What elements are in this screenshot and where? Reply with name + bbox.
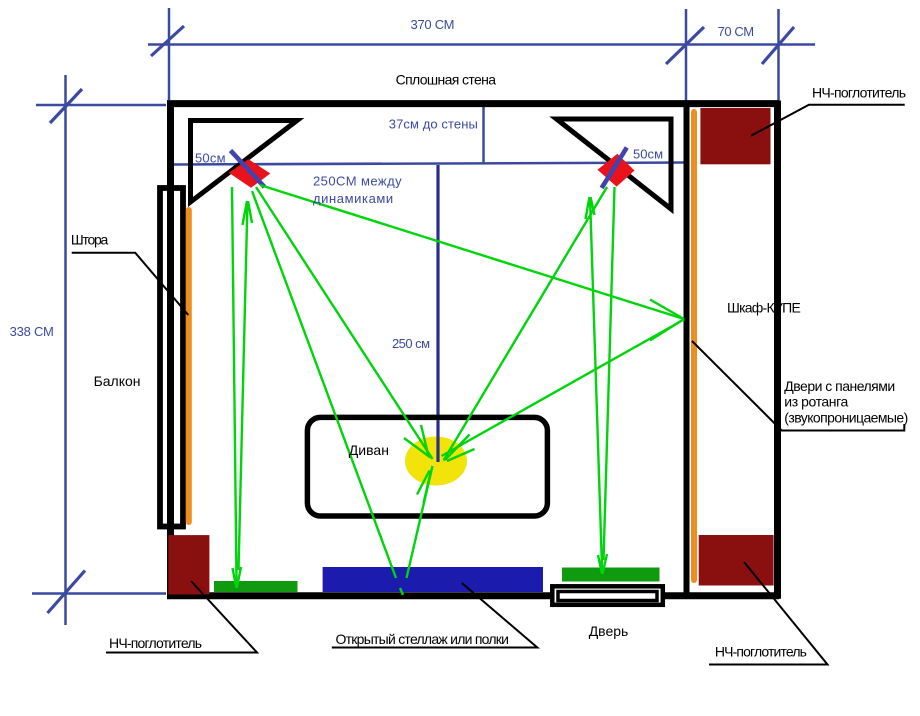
svg-text:из ротанга: из ротанга — [784, 394, 848, 410]
svg-text:37см до стены: 37см до стены — [389, 117, 478, 132]
svg-text:50см: 50см — [633, 147, 663, 162]
svg-text:250 см: 250 см — [392, 336, 430, 351]
svg-text:70 СМ: 70 СМ — [718, 24, 755, 39]
svg-text:(звукопроницаемые): (звукопроницаемые) — [784, 410, 908, 426]
svg-text:Сплошная стена: Сплошная стена — [396, 72, 497, 88]
svg-text:250СМ между: 250СМ между — [313, 174, 402, 189]
svg-text:НЧ-поглотитель: НЧ-поглотитель — [715, 644, 807, 660]
svg-text:Диван: Диван — [349, 442, 389, 458]
svg-text:Дверь: Дверь — [589, 623, 629, 639]
svg-text:370 СМ: 370 СМ — [411, 17, 455, 32]
svg-text:НЧ-поглотитель: НЧ-поглотитель — [109, 635, 202, 651]
svg-text:338 СМ: 338 СМ — [10, 324, 54, 339]
svg-text:Балкон: Балкон — [94, 373, 141, 389]
svg-text:динамиками: динамиками — [313, 191, 393, 206]
svg-text:Открытый стеллаж или полки: Открытый стеллаж или полки — [336, 631, 510, 647]
svg-text:Двери с панелями: Двери с панелями — [784, 378, 895, 394]
svg-text:НЧ-поглотитель: НЧ-поглотитель — [812, 84, 906, 100]
svg-text:50см: 50см — [195, 151, 226, 166]
svg-text:Штора: Штора — [71, 231, 109, 247]
svg-text:Шкаф-КУПЕ: Шкаф-КУПЕ — [727, 300, 801, 316]
